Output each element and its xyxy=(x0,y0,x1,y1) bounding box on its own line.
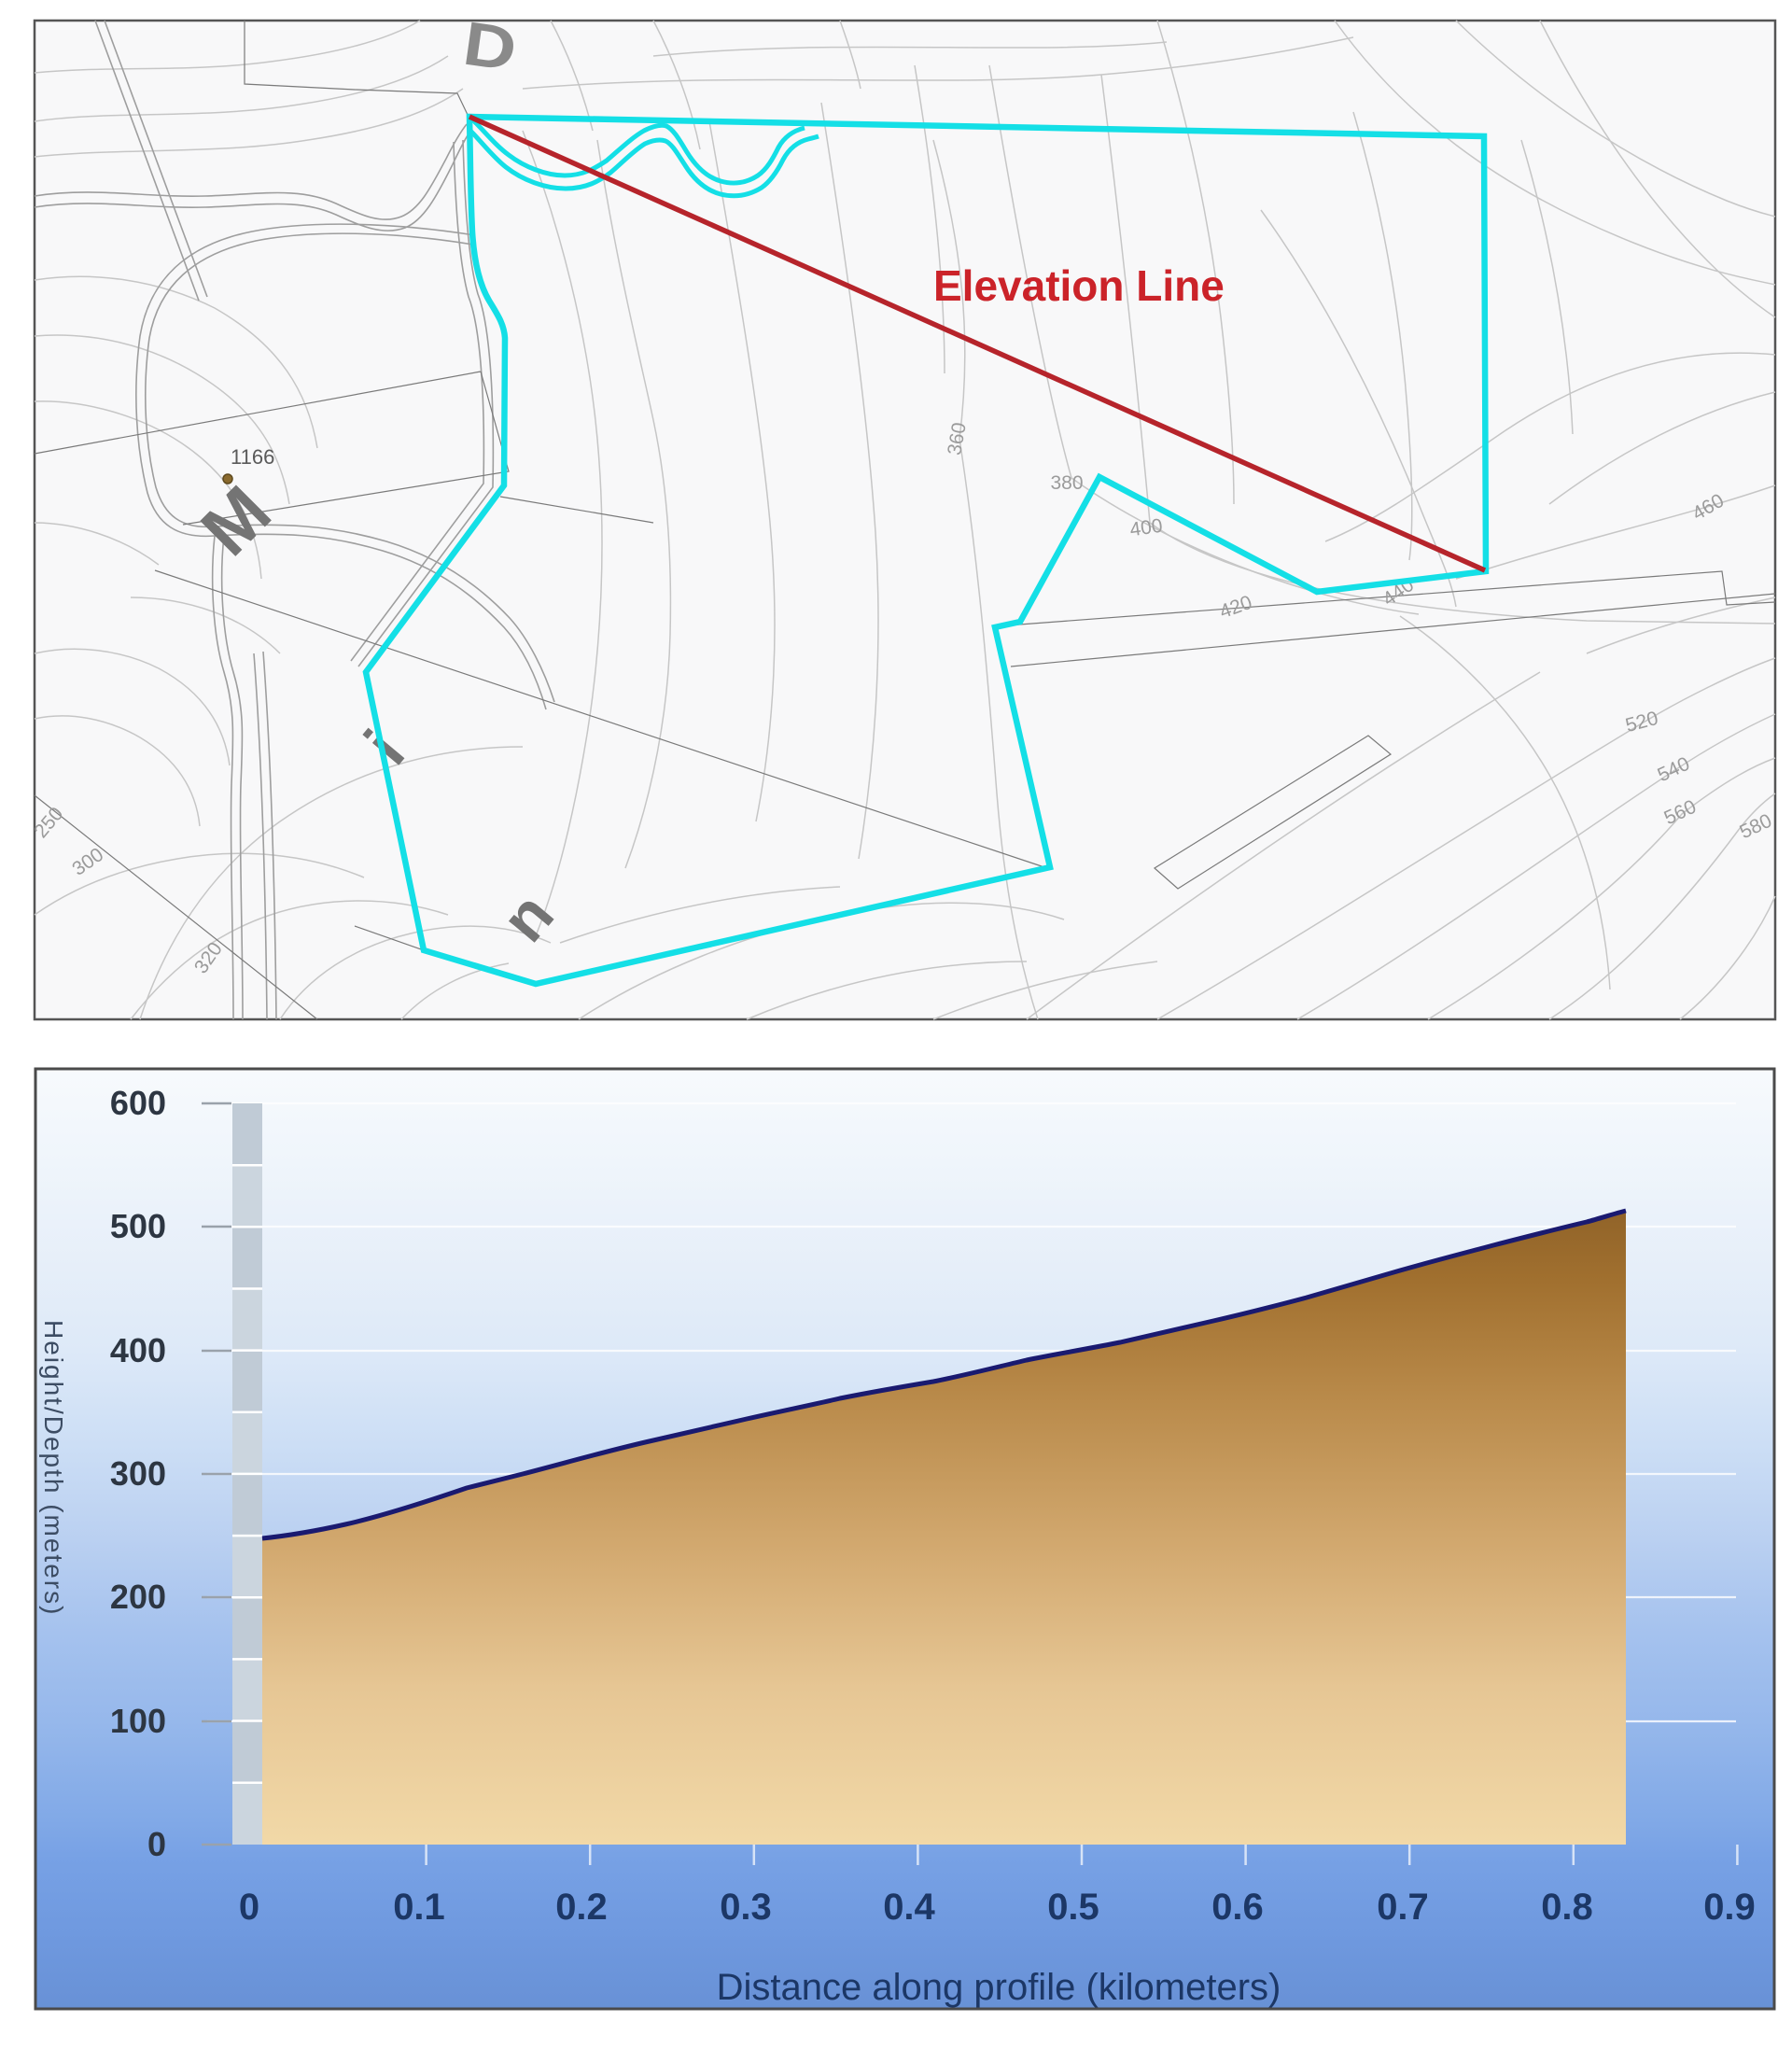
svg-text:0.7: 0.7 xyxy=(1377,1887,1429,1928)
svg-text:0.3: 0.3 xyxy=(720,1887,772,1928)
svg-text:Height/Depth (meters): Height/Depth (meters) xyxy=(39,1320,68,1616)
svg-text:0.9: 0.9 xyxy=(1703,1887,1756,1928)
svg-text:0.2: 0.2 xyxy=(555,1887,608,1928)
svg-text:0.8: 0.8 xyxy=(1541,1887,1593,1928)
svg-text:0.4: 0.4 xyxy=(883,1887,935,1928)
svg-text:D: D xyxy=(459,9,521,84)
svg-text:0: 0 xyxy=(239,1887,259,1928)
svg-text:100: 100 xyxy=(110,1702,166,1740)
svg-text:0.6: 0.6 xyxy=(1211,1887,1264,1928)
svg-text:400: 400 xyxy=(110,1331,166,1369)
svg-text:380: 380 xyxy=(1050,472,1083,494)
svg-text:Elevation Line: Elevation Line xyxy=(933,261,1225,310)
svg-text:600: 600 xyxy=(110,1084,166,1122)
svg-text:0.1: 0.1 xyxy=(393,1887,445,1928)
svg-text:0.5: 0.5 xyxy=(1047,1887,1099,1928)
svg-text:500: 500 xyxy=(110,1207,166,1245)
svg-text:Distance along profile (kilome: Distance along profile (kilometers) xyxy=(717,1967,1281,2008)
svg-text:0: 0 xyxy=(147,1825,166,1863)
svg-text:400: 400 xyxy=(1128,515,1164,541)
svg-text:300: 300 xyxy=(110,1454,166,1493)
svg-text:200: 200 xyxy=(110,1578,166,1616)
svg-text:1166: 1166 xyxy=(231,445,274,469)
